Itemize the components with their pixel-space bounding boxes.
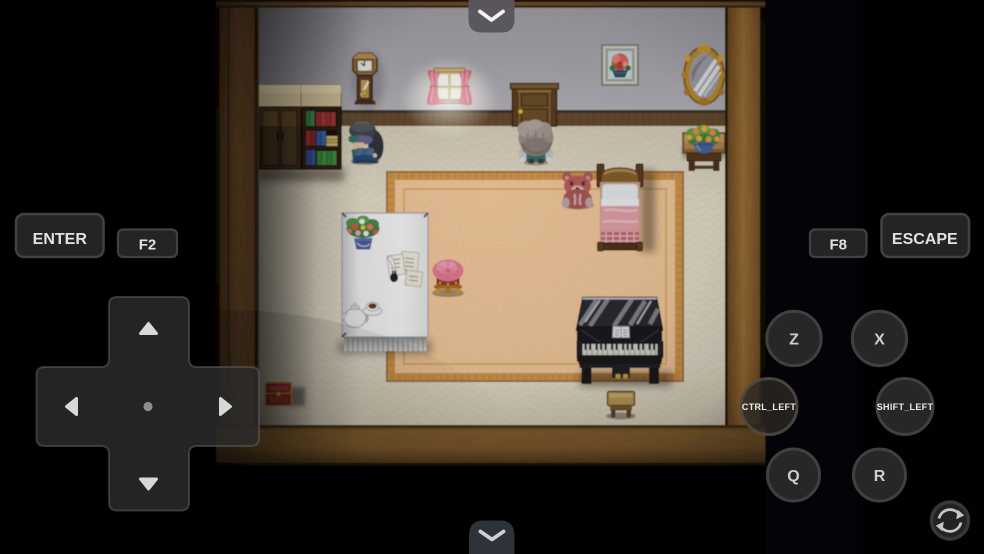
svg-text:ENTER: ENTER	[33, 231, 88, 248]
svg-text:X: X	[874, 332, 885, 349]
svg-text:F8: F8	[829, 237, 847, 254]
svg-text:SHIFT_LEFT: SHIFT_LEFT	[877, 402, 934, 412]
svg-text:F2: F2	[139, 237, 157, 254]
svg-text:R: R	[874, 468, 886, 485]
svg-text:Z: Z	[789, 332, 799, 349]
svg-text:ESCAPE: ESCAPE	[892, 231, 958, 248]
svg-text:Q: Q	[787, 468, 799, 485]
svg-text:CTRL_LEFT: CTRL_LEFT	[742, 402, 796, 412]
